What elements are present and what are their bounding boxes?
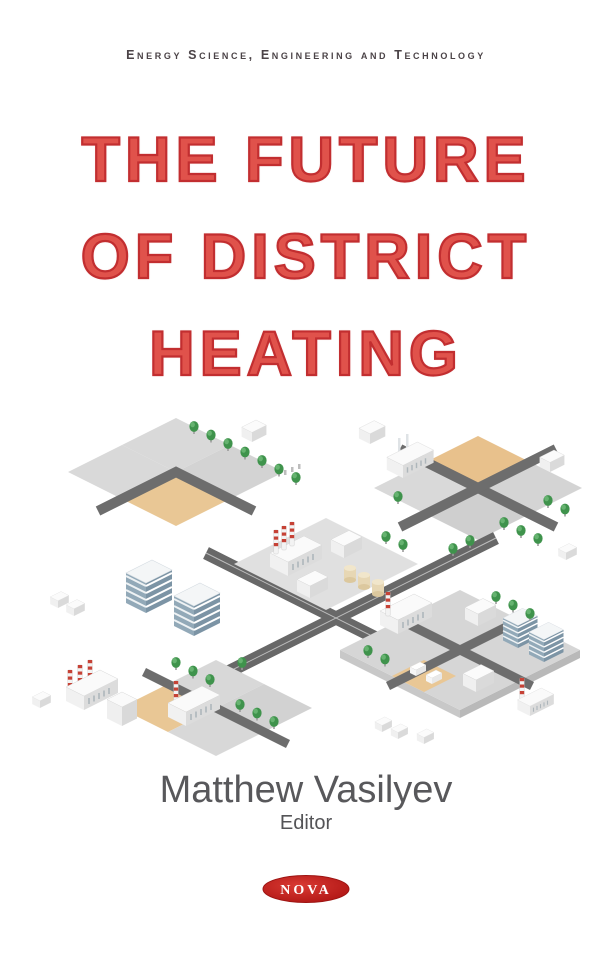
tree-icon [291, 472, 300, 485]
series-title: Energy Science, Engineering and Technolo… [0, 48, 612, 62]
author-block: Matthew Vasilyev Editor [0, 770, 612, 836]
book-title-line-2: OF DISTRICT [0, 209, 612, 306]
bollard [298, 464, 301, 469]
office-building-icon [174, 583, 220, 636]
chimney-icon [282, 526, 286, 550]
book-cover: Energy Science, Engineering and Technolo… [0, 0, 612, 960]
tree-icon [516, 525, 525, 538]
building-icon [375, 717, 392, 732]
tree-icon [560, 504, 569, 517]
building-icon [50, 592, 69, 609]
bollard [284, 470, 287, 475]
tree-icon [491, 591, 500, 604]
tree-icon [398, 539, 407, 552]
tree-icon [171, 657, 180, 670]
chimney-icon [290, 522, 294, 546]
chimney-icon [274, 530, 278, 554]
author-role: Editor [0, 810, 612, 836]
office-building-icon [126, 560, 172, 613]
book-title-line-3: HEATING [0, 306, 612, 403]
tree-icon [393, 491, 402, 504]
storage-tank-icon [344, 565, 356, 583]
building-icon [558, 544, 577, 561]
tree-icon [508, 600, 517, 613]
building-icon [66, 600, 85, 617]
building-icon [242, 420, 267, 442]
building-icon [359, 421, 385, 444]
publisher-logo: NOVA [258, 872, 354, 906]
building-icon [32, 692, 51, 709]
chimney-icon [386, 592, 390, 616]
author-name: Matthew Vasilyev [0, 770, 612, 810]
isometric-city-illustration [26, 408, 586, 763]
office-buildings-west [126, 560, 220, 636]
publisher-name: NOVA [280, 883, 331, 898]
book-title-line-1: THE FUTURE [0, 112, 612, 209]
storage-tank-icon [372, 579, 384, 597]
storage-tank-icon [358, 572, 370, 590]
building-icon [417, 729, 434, 744]
tree-icon [533, 533, 542, 546]
tree-icon [381, 531, 390, 544]
bollard [291, 467, 294, 472]
book-title: THE FUTURE OF DISTRICT HEATING [0, 112, 612, 403]
building-icon [391, 724, 408, 739]
